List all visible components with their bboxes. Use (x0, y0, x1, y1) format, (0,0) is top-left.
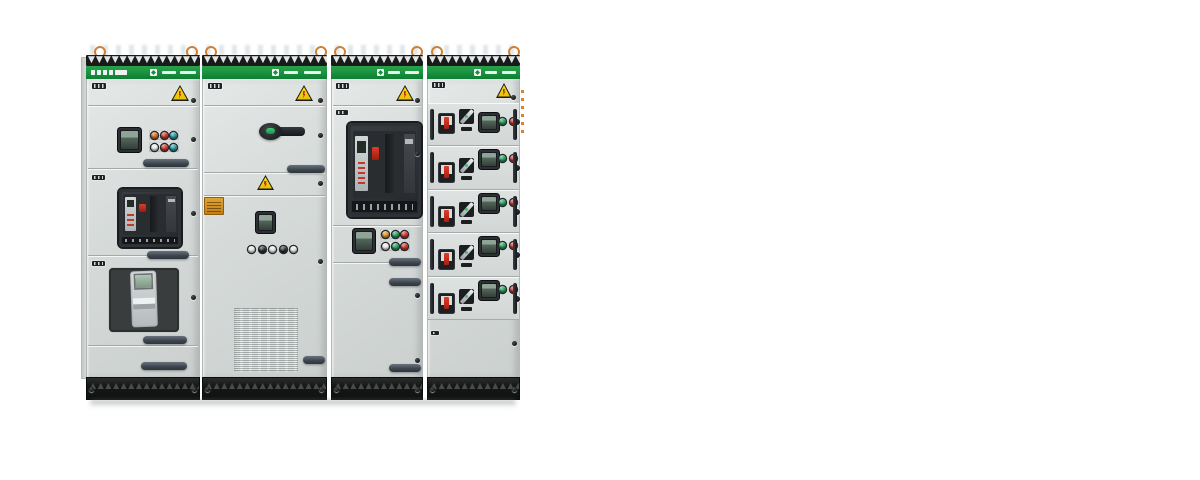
breaker-rating-plate (404, 134, 416, 192)
reflection-highlight (206, 45, 323, 55)
unit-label (431, 331, 439, 335)
nameplate-strip (109, 70, 113, 75)
panel-1-incomer (86, 45, 200, 400)
plinth (427, 377, 520, 400)
unit-label (92, 83, 106, 89)
breaker-indicator-strip (122, 237, 178, 244)
pushbutton-icon (382, 243, 389, 250)
drawer-rotary-switch-icon (459, 245, 474, 260)
plinth (202, 377, 327, 400)
door-handle (389, 364, 421, 372)
door-knob-icon (511, 95, 516, 100)
top-busbar-channel (331, 55, 423, 66)
plinth-bolt-icon (415, 387, 420, 392)
manufacturer-wordmark (180, 71, 196, 75)
plinth (331, 377, 423, 400)
door-handle (147, 251, 189, 259)
brand-band (331, 66, 423, 80)
manufacturer-logo-block (150, 69, 157, 76)
unit-label (336, 110, 348, 115)
air-circuit-breaker (348, 123, 421, 217)
drawer-breaker-toggle (438, 206, 455, 227)
door-knob-icon (318, 181, 323, 186)
panel-2-main-switch (202, 45, 327, 400)
drawer-rail-left-icon (430, 196, 434, 227)
breaker-rating-plate (166, 196, 176, 232)
hazard-warning-triangle-icon (496, 83, 512, 98)
pushbutton-icon (401, 231, 408, 238)
reflection-highlight (431, 45, 516, 55)
door-knob-icon (191, 295, 196, 300)
pushbutton-cluster (380, 241, 410, 251)
door-handle (389, 278, 421, 286)
drawer-label (461, 307, 472, 311)
unit-label (208, 83, 222, 89)
unit-label (432, 82, 445, 88)
door-seam (88, 105, 198, 106)
door-seam (204, 195, 325, 196)
drawer-rail-left-icon (430, 283, 434, 314)
withdrawable-drawer (428, 233, 519, 276)
door-knob-icon (415, 358, 420, 363)
pushbutton-icon (161, 132, 168, 139)
brand-band (427, 66, 520, 80)
pushbutton-icon (499, 286, 506, 293)
pushbutton-icon (401, 243, 408, 250)
top-busbar-channel (202, 55, 327, 66)
hazard-warning-triangle-icon (295, 85, 313, 101)
breaker-trip-unit (355, 136, 367, 191)
withdrawable-drawer (428, 277, 519, 320)
door-knob-icon (318, 133, 323, 138)
drawer-meter-display (479, 150, 499, 169)
meter-window (109, 268, 179, 332)
door-knob-icon (415, 293, 420, 298)
withdrawable-drawer (428, 103, 519, 146)
door-seam (88, 168, 198, 169)
plinth-bolt-icon (512, 387, 517, 392)
pushbutton-icon (392, 243, 399, 250)
drawer-meter-display (479, 194, 499, 213)
drawer-rail-right-icon (513, 239, 517, 270)
plinth-bolt-icon (89, 387, 94, 392)
pushbutton-icon (280, 246, 287, 253)
hazard-warning-triangle-icon (396, 85, 414, 101)
unit-label (336, 83, 349, 89)
manufacturer-wordmark (502, 71, 516, 75)
pushbutton-icon (170, 132, 177, 139)
drawer-label (461, 176, 472, 180)
pushbutton-icon (499, 242, 506, 249)
pushbutton-icon (290, 246, 297, 253)
pushbutton-icon (499, 155, 506, 162)
reflection-highlight (335, 45, 419, 55)
drawer-rail-right-icon (513, 196, 517, 227)
drawer-rail-left-icon (430, 239, 434, 270)
door-seam (333, 105, 421, 106)
pushbutton-cluster (149, 142, 179, 152)
drawer-stack (428, 103, 519, 320)
rating-sticker (204, 197, 224, 215)
nameplate-strip (115, 70, 127, 75)
breaker-handle-slot (150, 196, 158, 232)
panel-3-incomer (331, 45, 423, 400)
door-knob-icon (318, 259, 323, 264)
pushbutton-icon (151, 132, 158, 139)
drawer-meter-display (479, 113, 499, 132)
door-knob-icon (191, 211, 196, 216)
door-knob-icon (191, 98, 196, 103)
plinth-bolt-icon (319, 387, 324, 392)
manufacturer-logo-block (377, 69, 384, 76)
manufacturer-logo-block (272, 69, 279, 76)
manufacturer-wordmark (405, 71, 419, 75)
drawer-rail-right-icon (513, 283, 517, 314)
door-handle (141, 362, 187, 370)
door-seam (88, 345, 198, 346)
brand-band (202, 66, 327, 80)
door-knob-icon (415, 98, 420, 103)
floor-shadow (90, 400, 516, 408)
drawer-rail-right-icon (513, 152, 517, 183)
drawer-rotary-switch-icon (459, 202, 474, 217)
nameplate-strip (97, 70, 101, 75)
unit-label (92, 175, 105, 180)
ventilation-grille (234, 308, 298, 372)
drawer-label (461, 263, 472, 267)
drawer-label (461, 220, 472, 224)
pushbutton-icon (269, 246, 276, 253)
door-knob-icon (512, 341, 517, 346)
breaker-trip-unit (125, 197, 136, 231)
pushbutton-icon (161, 144, 168, 151)
plinth-bolt-icon (334, 387, 339, 392)
top-busbar-channel (86, 55, 200, 66)
air-circuit-breaker (119, 189, 181, 247)
manufacturer-wordmark (304, 71, 321, 75)
drawer-rotary-switch-icon (459, 289, 474, 304)
hazard-warning-triangle-icon (257, 175, 274, 190)
pushbutton-icon (382, 231, 389, 238)
top-busbar-channel (427, 55, 520, 66)
panel-body (202, 79, 327, 379)
pushbutton-icon (151, 144, 158, 151)
drawer-rotary-switch-icon (459, 109, 474, 124)
withdrawable-drawer (428, 190, 519, 233)
panel-body (427, 79, 520, 379)
door-seam (204, 105, 325, 106)
breaker-indicator-strip (352, 201, 418, 212)
pushbutton-icon (392, 231, 399, 238)
manufacturer-logo-block (474, 69, 481, 76)
withdrawable-drawer (428, 146, 519, 189)
meter-display (256, 212, 275, 233)
drawer-meter-display (479, 281, 499, 300)
breaker-handle-slot (385, 134, 394, 192)
manufacturer-wordmark (388, 71, 400, 75)
panel-4-feeders (427, 45, 520, 400)
brand-band (86, 66, 200, 80)
drawer-breaker-toggle (438, 162, 455, 183)
breaker-trip-button (139, 204, 145, 212)
indicator-row (247, 245, 298, 254)
pushbutton-icon (248, 246, 255, 253)
plinth-bolt-icon (430, 387, 435, 392)
door-handle (303, 356, 325, 364)
panel-body (86, 79, 200, 379)
drawer-rotary-switch-icon (459, 158, 474, 173)
hinge-pin-column (521, 85, 524, 133)
rotary-main-handle (259, 121, 307, 143)
plinth (86, 377, 200, 400)
unit-label (92, 261, 105, 266)
door-knob-icon (191, 137, 196, 142)
plinth-bolt-icon (205, 387, 210, 392)
photo-stage (0, 0, 1200, 480)
door-knob-icon (415, 151, 420, 156)
door-handle (389, 258, 421, 266)
main-switch-status-dot (266, 128, 275, 134)
drawer-meter-display (479, 237, 499, 256)
door-knob-icon (318, 98, 323, 103)
drawer-rail-right-icon (513, 109, 517, 140)
pushbutton-icon (499, 118, 506, 125)
breaker-trip-button (372, 147, 379, 159)
pushbutton-cluster (380, 229, 410, 239)
nameplate-strip (91, 70, 95, 75)
manufacturer-wordmark (284, 71, 298, 75)
meter-display (118, 128, 141, 152)
manufacturer-wordmark (485, 71, 497, 75)
pushbutton-icon (259, 246, 266, 253)
manufacturer-wordmark (162, 71, 176, 75)
door-seam (333, 225, 421, 226)
energy-meter (130, 271, 158, 328)
meter-display (353, 229, 375, 253)
drawer-breaker-toggle (438, 113, 455, 134)
pushbutton-icon (499, 199, 506, 206)
drawer-rail-left-icon (430, 109, 434, 140)
door-handle (143, 336, 187, 344)
pushbutton-icon (170, 144, 177, 151)
switchgear-lineup (86, 45, 520, 401)
drawer-breaker-toggle (438, 293, 455, 314)
door-handle (287, 165, 325, 173)
drawer-rail-left-icon (430, 152, 434, 183)
hazard-warning-triangle-icon (171, 85, 189, 101)
pushbutton-cluster (149, 130, 179, 140)
panel-body (331, 79, 423, 379)
plinth-bolt-icon (192, 387, 197, 392)
drawer-breaker-toggle (438, 249, 455, 270)
door-handle (143, 159, 189, 167)
drawer-label (461, 127, 472, 131)
nameplate-strip (103, 70, 107, 75)
